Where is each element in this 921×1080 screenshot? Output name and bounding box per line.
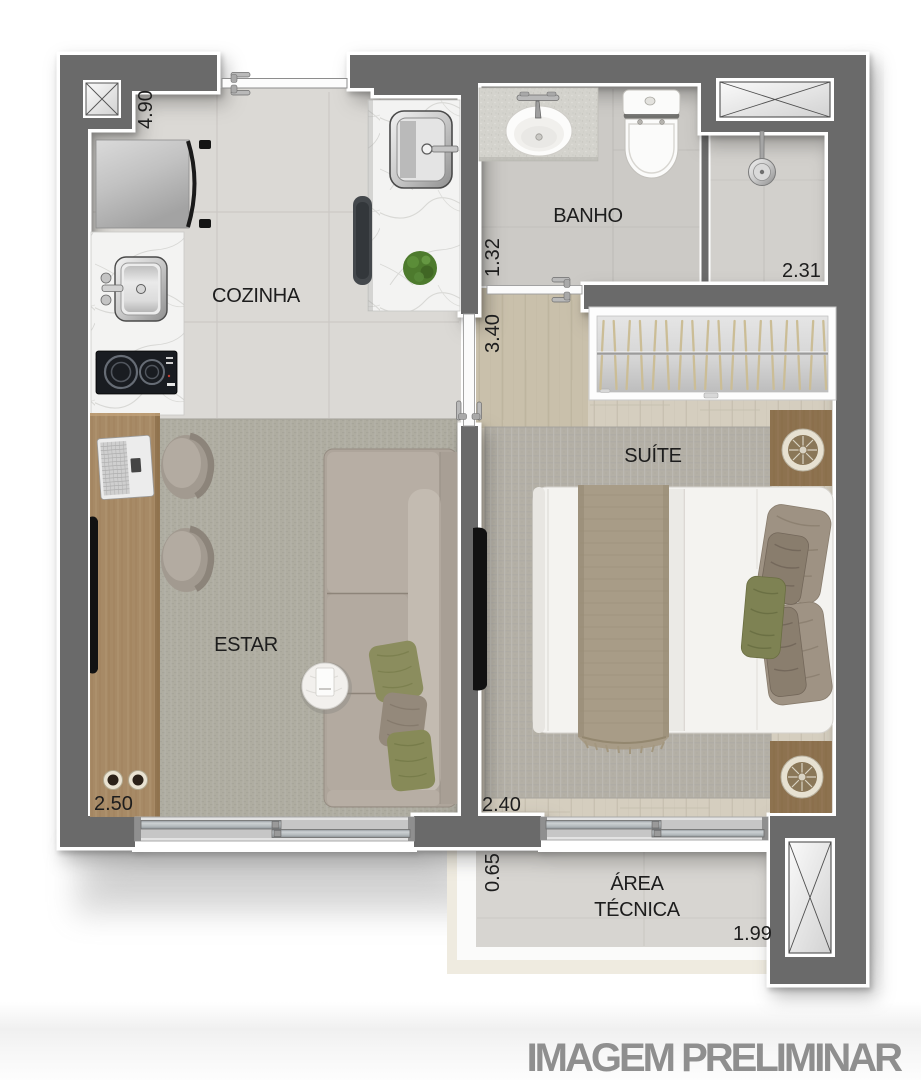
svg-text:ESTAR: ESTAR <box>214 634 278 656</box>
svg-text:1.32: 1.32 <box>482 238 504 277</box>
svg-text:IMAGEM PRELIMINAR: IMAGEM PRELIMINAR <box>527 1036 904 1080</box>
svg-text:TÉCNICA: TÉCNICA <box>594 898 681 921</box>
svg-text:SUÍTE: SUÍTE <box>624 444 681 467</box>
svg-text:BANHO: BANHO <box>553 205 623 227</box>
svg-text:3.40: 3.40 <box>482 314 504 353</box>
svg-text:4.90: 4.90 <box>135 90 157 129</box>
svg-text:2.40: 2.40 <box>482 794 521 816</box>
svg-text:0.65: 0.65 <box>482 853 504 892</box>
svg-text:2.31: 2.31 <box>782 260 821 282</box>
svg-text:COZINHA: COZINHA <box>212 285 301 307</box>
svg-text:2.50: 2.50 <box>94 793 133 815</box>
svg-text:1.99: 1.99 <box>733 923 772 945</box>
svg-text:ÁREA: ÁREA <box>610 872 664 895</box>
